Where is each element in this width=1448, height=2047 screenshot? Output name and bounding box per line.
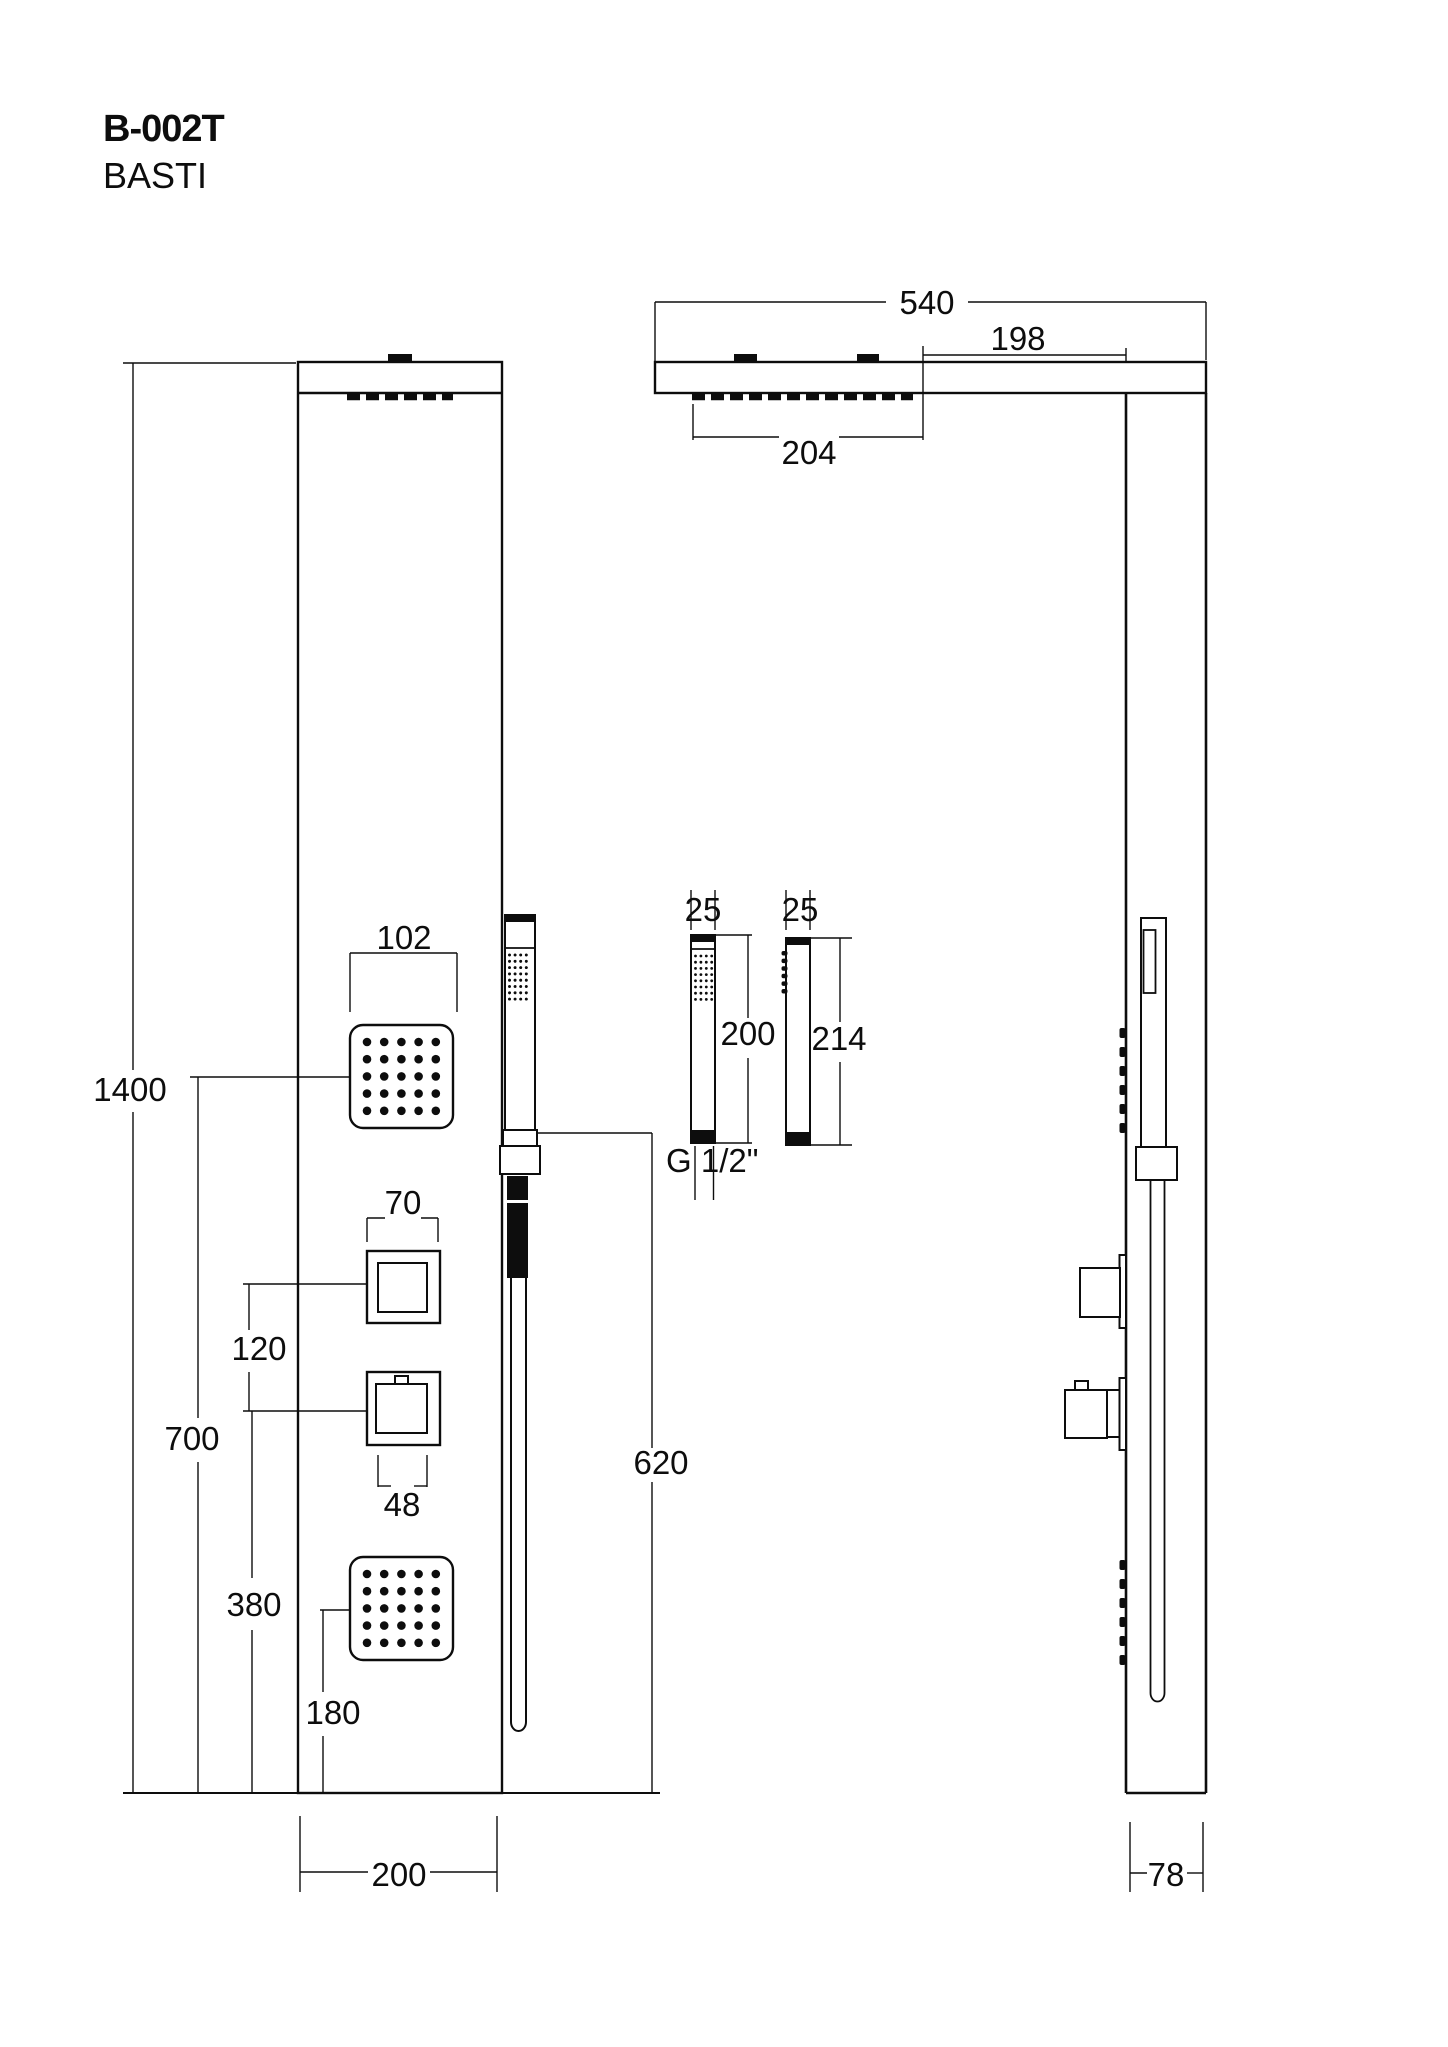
hand-shower-detail-front: 25 200 G 1/2": [666, 890, 776, 1200]
dim-label-700: 700: [164, 1420, 219, 1457]
dim-hand-shower-length-side: 214: [810, 938, 867, 1145]
dim-label-48: 48: [384, 1486, 421, 1523]
side-view: 540 198 204 78: [655, 284, 1206, 1893]
dim-label-120: 120: [231, 1330, 286, 1367]
dim-lower-knob-height: 380: [226, 1411, 281, 1793]
dim-label-620: 620: [633, 1444, 688, 1481]
dim-label-540: 540: [899, 284, 954, 321]
dim-label-78: 78: [1148, 1856, 1185, 1893]
front-view: 1400 700 120 380 180: [93, 354, 688, 1893]
hose-bottom-cap-side: [1151, 1693, 1165, 1702]
hand-shower-detail-side: 25 214: [782, 890, 867, 1145]
dim-label-200-hand: 200: [720, 1015, 775, 1052]
water-inlet-tab: [388, 354, 412, 363]
arm-mount-tab-2: [857, 354, 879, 363]
model-number: B-002T: [103, 108, 224, 150]
dim-label-25-front: 25: [685, 891, 722, 928]
hand-shower-front: [500, 915, 540, 1731]
dim-label-198: 198: [990, 320, 1045, 357]
title-block: B-002T BASTI: [103, 108, 224, 196]
dim-label-380: 380: [226, 1586, 281, 1623]
drawing-svg: B-002T BASTI: [0, 0, 1448, 2047]
detail-wand-front: [691, 935, 715, 1143]
knob-lower-side: [1065, 1378, 1126, 1450]
hose-connector-lower: [507, 1203, 528, 1278]
jet-bumps-upper: [1120, 1028, 1126, 1133]
dim-panel-depth: 78: [1130, 1822, 1203, 1893]
thread-size-label: G 1/2": [666, 1142, 758, 1179]
dim-label-25-side: 25: [782, 891, 819, 928]
dim-head-length: 204: [693, 404, 923, 471]
dim-label-70: 70: [385, 1184, 422, 1221]
hand-shower-side-view: [1136, 918, 1177, 1702]
control-knob-lower: [367, 1372, 440, 1445]
dim-panel-width: 200: [300, 1816, 497, 1893]
dim-label-180: 180: [305, 1694, 360, 1731]
shower-arm-side: [655, 362, 1206, 393]
dim-label-1400: 1400: [93, 1071, 166, 1108]
hand-shower-collar: [503, 1130, 537, 1146]
dim-total-height: 1400: [93, 363, 296, 1793]
arm-mount-tab-1: [734, 354, 757, 363]
product-name: BASTI: [103, 155, 207, 196]
dim-label-102: 102: [376, 919, 431, 956]
dim-label-214: 214: [811, 1020, 866, 1057]
thread-size-callout: G 1/2": [666, 1142, 758, 1200]
control-knob-upper: [367, 1251, 440, 1323]
technical-drawing-page: B-002T BASTI: [0, 0, 1448, 2047]
holder-side-profile: [1136, 1147, 1177, 1180]
dim-label-200-panel: 200: [371, 1856, 426, 1893]
wand-side-profile: [1141, 918, 1166, 1147]
dim-label-204: 204: [781, 434, 836, 471]
detail-wand-side: [786, 938, 810, 1145]
jet-bumps-lower: [1120, 1560, 1126, 1665]
dim-hose-drop: 620: [538, 1133, 689, 1793]
knob-upper-side: [1080, 1255, 1126, 1328]
dim-hand-shower-length-front: 200: [715, 935, 776, 1143]
hand-shower-holder-front: [500, 1146, 540, 1174]
hose-connector-upper: [507, 1176, 528, 1200]
hose-bottom-cap: [511, 1722, 526, 1731]
detail-wand-inlet-side: [787, 1132, 809, 1145]
